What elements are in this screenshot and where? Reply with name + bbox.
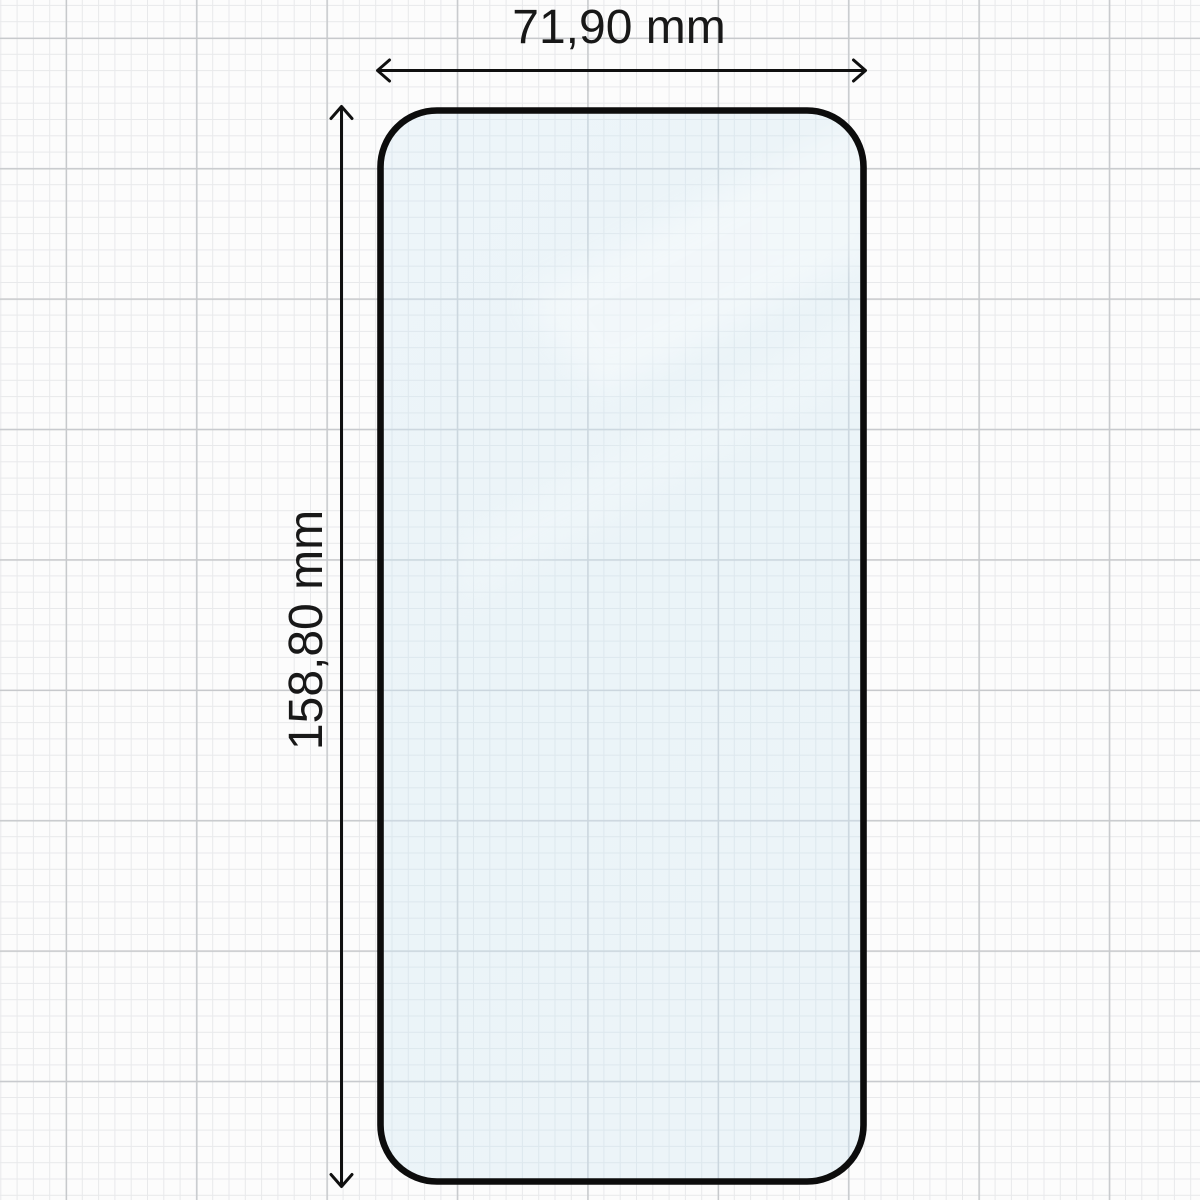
svg-text:71,90 mm: 71,90 mm bbox=[512, 1, 725, 54]
svg-text:158,80 mm: 158,80 mm bbox=[280, 510, 333, 750]
